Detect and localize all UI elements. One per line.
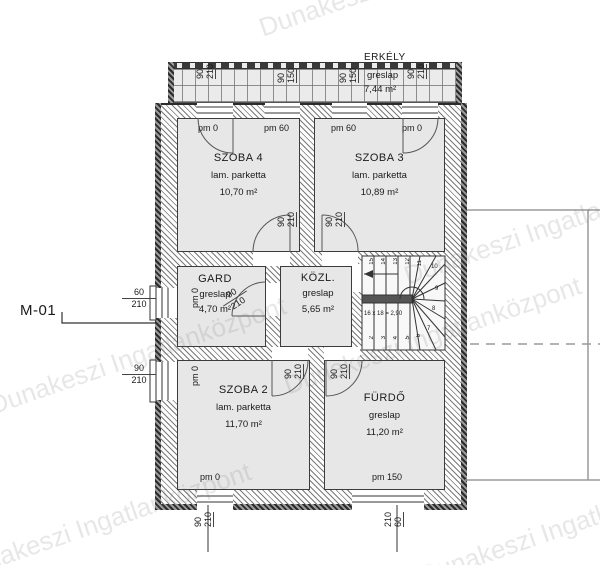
opening-door-furdo	[324, 347, 360, 360]
room-name: KÖZL.	[283, 270, 353, 286]
dim-width: 90	[193, 512, 203, 527]
adjacent-structure-lines	[465, 210, 600, 480]
stair-step-number: 8	[432, 306, 435, 312]
opening-door-gard	[266, 283, 280, 316]
room-area: 10,89 m²	[314, 184, 445, 201]
opening-window-furdo-bottom	[352, 490, 424, 510]
stair-step-number: 15	[369, 258, 375, 265]
stair-step-number: 11	[417, 260, 423, 266]
label-szoba3: SZOBA 3 lam. parketta 10,89 m²	[314, 150, 445, 201]
balcony-side-right	[456, 62, 462, 103]
dim-height: 210	[339, 364, 350, 379]
dim-height: 210	[203, 512, 214, 527]
drawing-label: M-01	[20, 302, 56, 319]
dim-door-furdo: 90 210	[329, 364, 350, 379]
room-name: SZOBA 3	[314, 150, 445, 167]
stair-step-number: 13	[393, 258, 399, 265]
room-name: FÜRDŐ	[324, 390, 445, 407]
dim-width: 90	[276, 68, 286, 83]
dim-height: 210	[122, 299, 156, 310]
stair-formula: 16 x 18 = 2,90	[364, 311, 402, 317]
balcony-name: ERKÉLY	[364, 52, 406, 63]
stair-step-number: 3	[381, 336, 387, 339]
dim-balcony-door-right: 90 210	[406, 64, 427, 79]
opening-door-szoba4	[253, 252, 290, 266]
balcony-material: greslap	[367, 70, 398, 81]
dim-balcony-door-left: 90 210	[195, 64, 216, 79]
dim-window-gard-left: 60 210	[122, 287, 156, 310]
dim-height: 210	[205, 64, 216, 79]
dim-height: 150	[348, 68, 359, 83]
parapet-gard-window: pm 0	[190, 288, 200, 308]
dim-window-szoba2-bottom: 90 210	[193, 512, 214, 527]
label-furdo: FÜRDŐ greslap 11,20 m²	[324, 390, 445, 441]
dim-width: 90	[276, 212, 286, 227]
parapet-szoba4-window: pm 60	[264, 123, 289, 133]
room-area: 10,70 m²	[177, 184, 300, 201]
stair-step-number: 5	[405, 336, 411, 339]
dim-height: 210	[286, 212, 297, 227]
opening-balcony-window-left	[265, 103, 300, 118]
dim-width: 90	[195, 64, 205, 79]
dim-width: 90	[338, 68, 348, 83]
dim-window-furdo-bottom: 210 60	[383, 512, 404, 527]
room-name: SZOBA 4	[177, 150, 300, 167]
opening-window-szoba2-bottom	[197, 490, 233, 510]
balcony-area: 7,44 m²	[364, 84, 396, 95]
stair-step-number: 7	[427, 326, 430, 332]
stair-step-number: 14	[381, 258, 387, 265]
floor-plan-canvas: ERKÉLY greslap 7,44 m² SZOBA 4 lam. park…	[0, 0, 600, 565]
dim-width: 210	[383, 512, 393, 527]
dim-height: 210	[416, 64, 427, 79]
dim-balcony-window-left: 90 150	[276, 68, 297, 83]
dim-height: 210	[122, 375, 156, 386]
stair-step-number: 12	[405, 258, 411, 265]
dim-height: 210	[293, 364, 304, 379]
dim-width: 90	[406, 64, 416, 79]
dim-height: 60	[393, 512, 404, 527]
dim-height: 210	[334, 212, 345, 227]
dim-width: 90	[329, 364, 339, 379]
room-area: 11,70 m²	[177, 416, 310, 433]
parapet-szoba2-bottom: pm 0	[200, 472, 220, 482]
room-material: greslap	[324, 407, 445, 424]
room-area: 11,20 m²	[324, 424, 445, 441]
label-szoba2: SZOBA 2 lam. parketta 11,70 m²	[177, 382, 310, 433]
dim-door-szoba3: 90 210	[324, 212, 345, 227]
dim-width: 90	[324, 212, 334, 227]
opening-window-gard	[155, 288, 177, 318]
room-material: lam. parketta	[177, 399, 310, 416]
dim-width: 90	[122, 363, 156, 375]
opening-door-szoba2	[272, 347, 308, 360]
stair-step-number: 4	[393, 336, 399, 339]
stair-step-number: 9	[435, 286, 438, 292]
stair-step-number: 6	[416, 334, 422, 337]
parapet-furdo-bottom: pm 150	[372, 472, 402, 482]
opening-stair-exit	[352, 264, 362, 292]
label-kozl: KÖZL. greslap 5,65 m²	[283, 270, 353, 318]
room-material: lam. parketta	[177, 167, 300, 184]
dim-height: 150	[286, 68, 297, 83]
room-material: greslap	[283, 286, 353, 302]
opening-balcony-door-left	[197, 103, 233, 118]
opening-balcony-door-right	[402, 103, 438, 118]
dim-width: 60	[122, 287, 156, 299]
stair-step-number: 10	[431, 264, 438, 270]
dim-balcony-window-right: 90 150	[338, 68, 359, 83]
room-area: 5,65 m²	[283, 302, 353, 318]
label-szoba4: SZOBA 4 lam. parketta 10,70 m²	[177, 150, 300, 201]
drawing-label-leader	[62, 312, 157, 323]
dim-door-szoba4: 90 210	[276, 212, 297, 227]
opening-window-szoba2-left	[155, 362, 177, 400]
balcony-side-left	[168, 62, 174, 103]
parapet-szoba4-door: pm 0	[198, 123, 218, 133]
dim-window-szoba2-left: 90 210	[122, 363, 156, 386]
watermark: Dunakeszi Ingatlanközpont	[255, 0, 560, 43]
wall-edge-right	[461, 103, 467, 510]
parapet-szoba2-side-window: pm 0	[190, 366, 200, 386]
stair-step-number: 2	[369, 336, 375, 339]
parapet-szoba3-window: pm 60	[331, 123, 356, 133]
dim-door-szoba2: 90 210	[283, 364, 304, 379]
dim-width: 90	[283, 364, 293, 379]
bottom-dim-lines	[208, 505, 397, 552]
room-material: lam. parketta	[314, 167, 445, 184]
parapet-szoba3-door: pm 0	[402, 123, 422, 133]
opening-balcony-window-right	[332, 103, 367, 118]
